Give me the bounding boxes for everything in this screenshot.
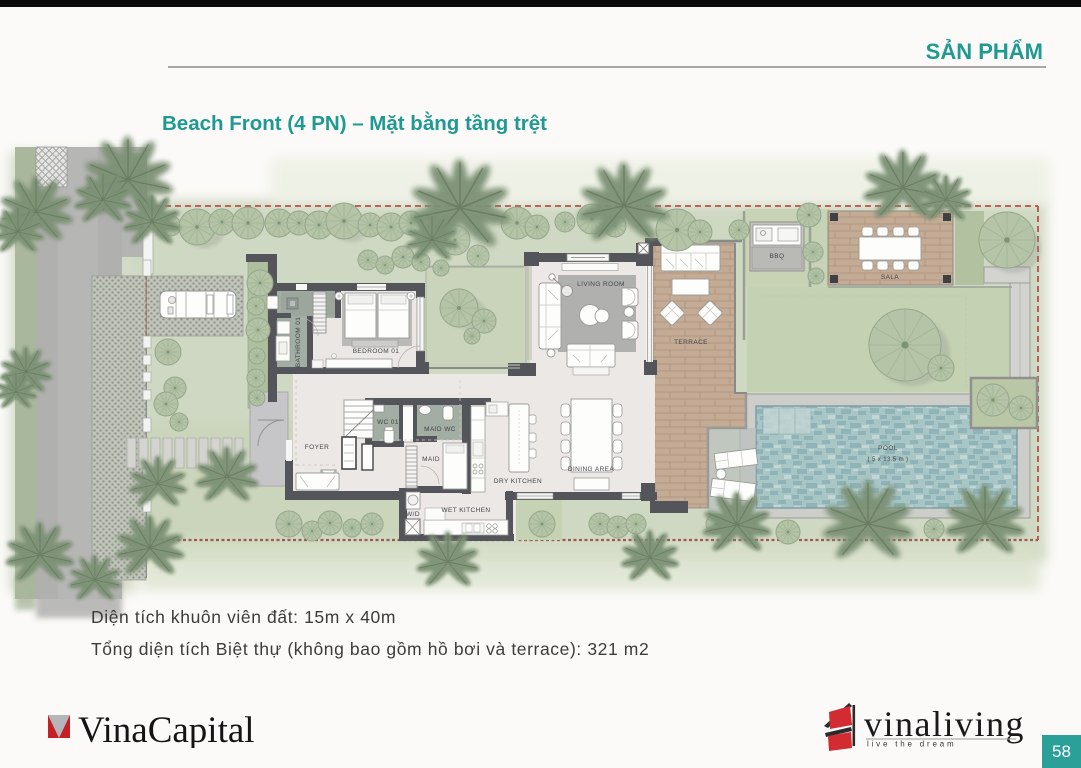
svg-text:FOYER: FOYER [305, 444, 329, 451]
svg-text:VinaCapital: VinaCapital [78, 714, 255, 748]
svg-text:BEDROOM 01: BEDROOM 01 [353, 348, 400, 355]
svg-text:DINING AREA: DINING AREA [568, 466, 615, 473]
svg-text:BATHROOM 01: BATHROOM 01 [295, 317, 302, 368]
svg-text:DRY KITCHEN: DRY KITCHEN [494, 478, 542, 485]
svg-text:live the dream: live the dream [867, 740, 956, 749]
svg-text:MAID: MAID [422, 456, 440, 463]
svg-text:POOL: POOL [878, 445, 898, 452]
svg-text:WC 01: WC 01 [377, 419, 399, 426]
svg-text:vinaliving: vinaliving [864, 704, 1025, 744]
svg-text:BBQ: BBQ [770, 253, 785, 260]
svg-text:SALA: SALA [881, 274, 899, 281]
svg-text:TERRACE: TERRACE [674, 339, 708, 346]
svg-text:WET KITCHEN: WET KITCHEN [441, 507, 490, 514]
svg-text:LIVING ROOM: LIVING ROOM [577, 281, 625, 288]
svg-text:MAID WC: MAID WC [424, 426, 456, 433]
svg-text:( 5 x 13.5 m ): ( 5 x 13.5 m ) [868, 457, 909, 463]
svg-text:W/D: W/D [406, 511, 420, 518]
